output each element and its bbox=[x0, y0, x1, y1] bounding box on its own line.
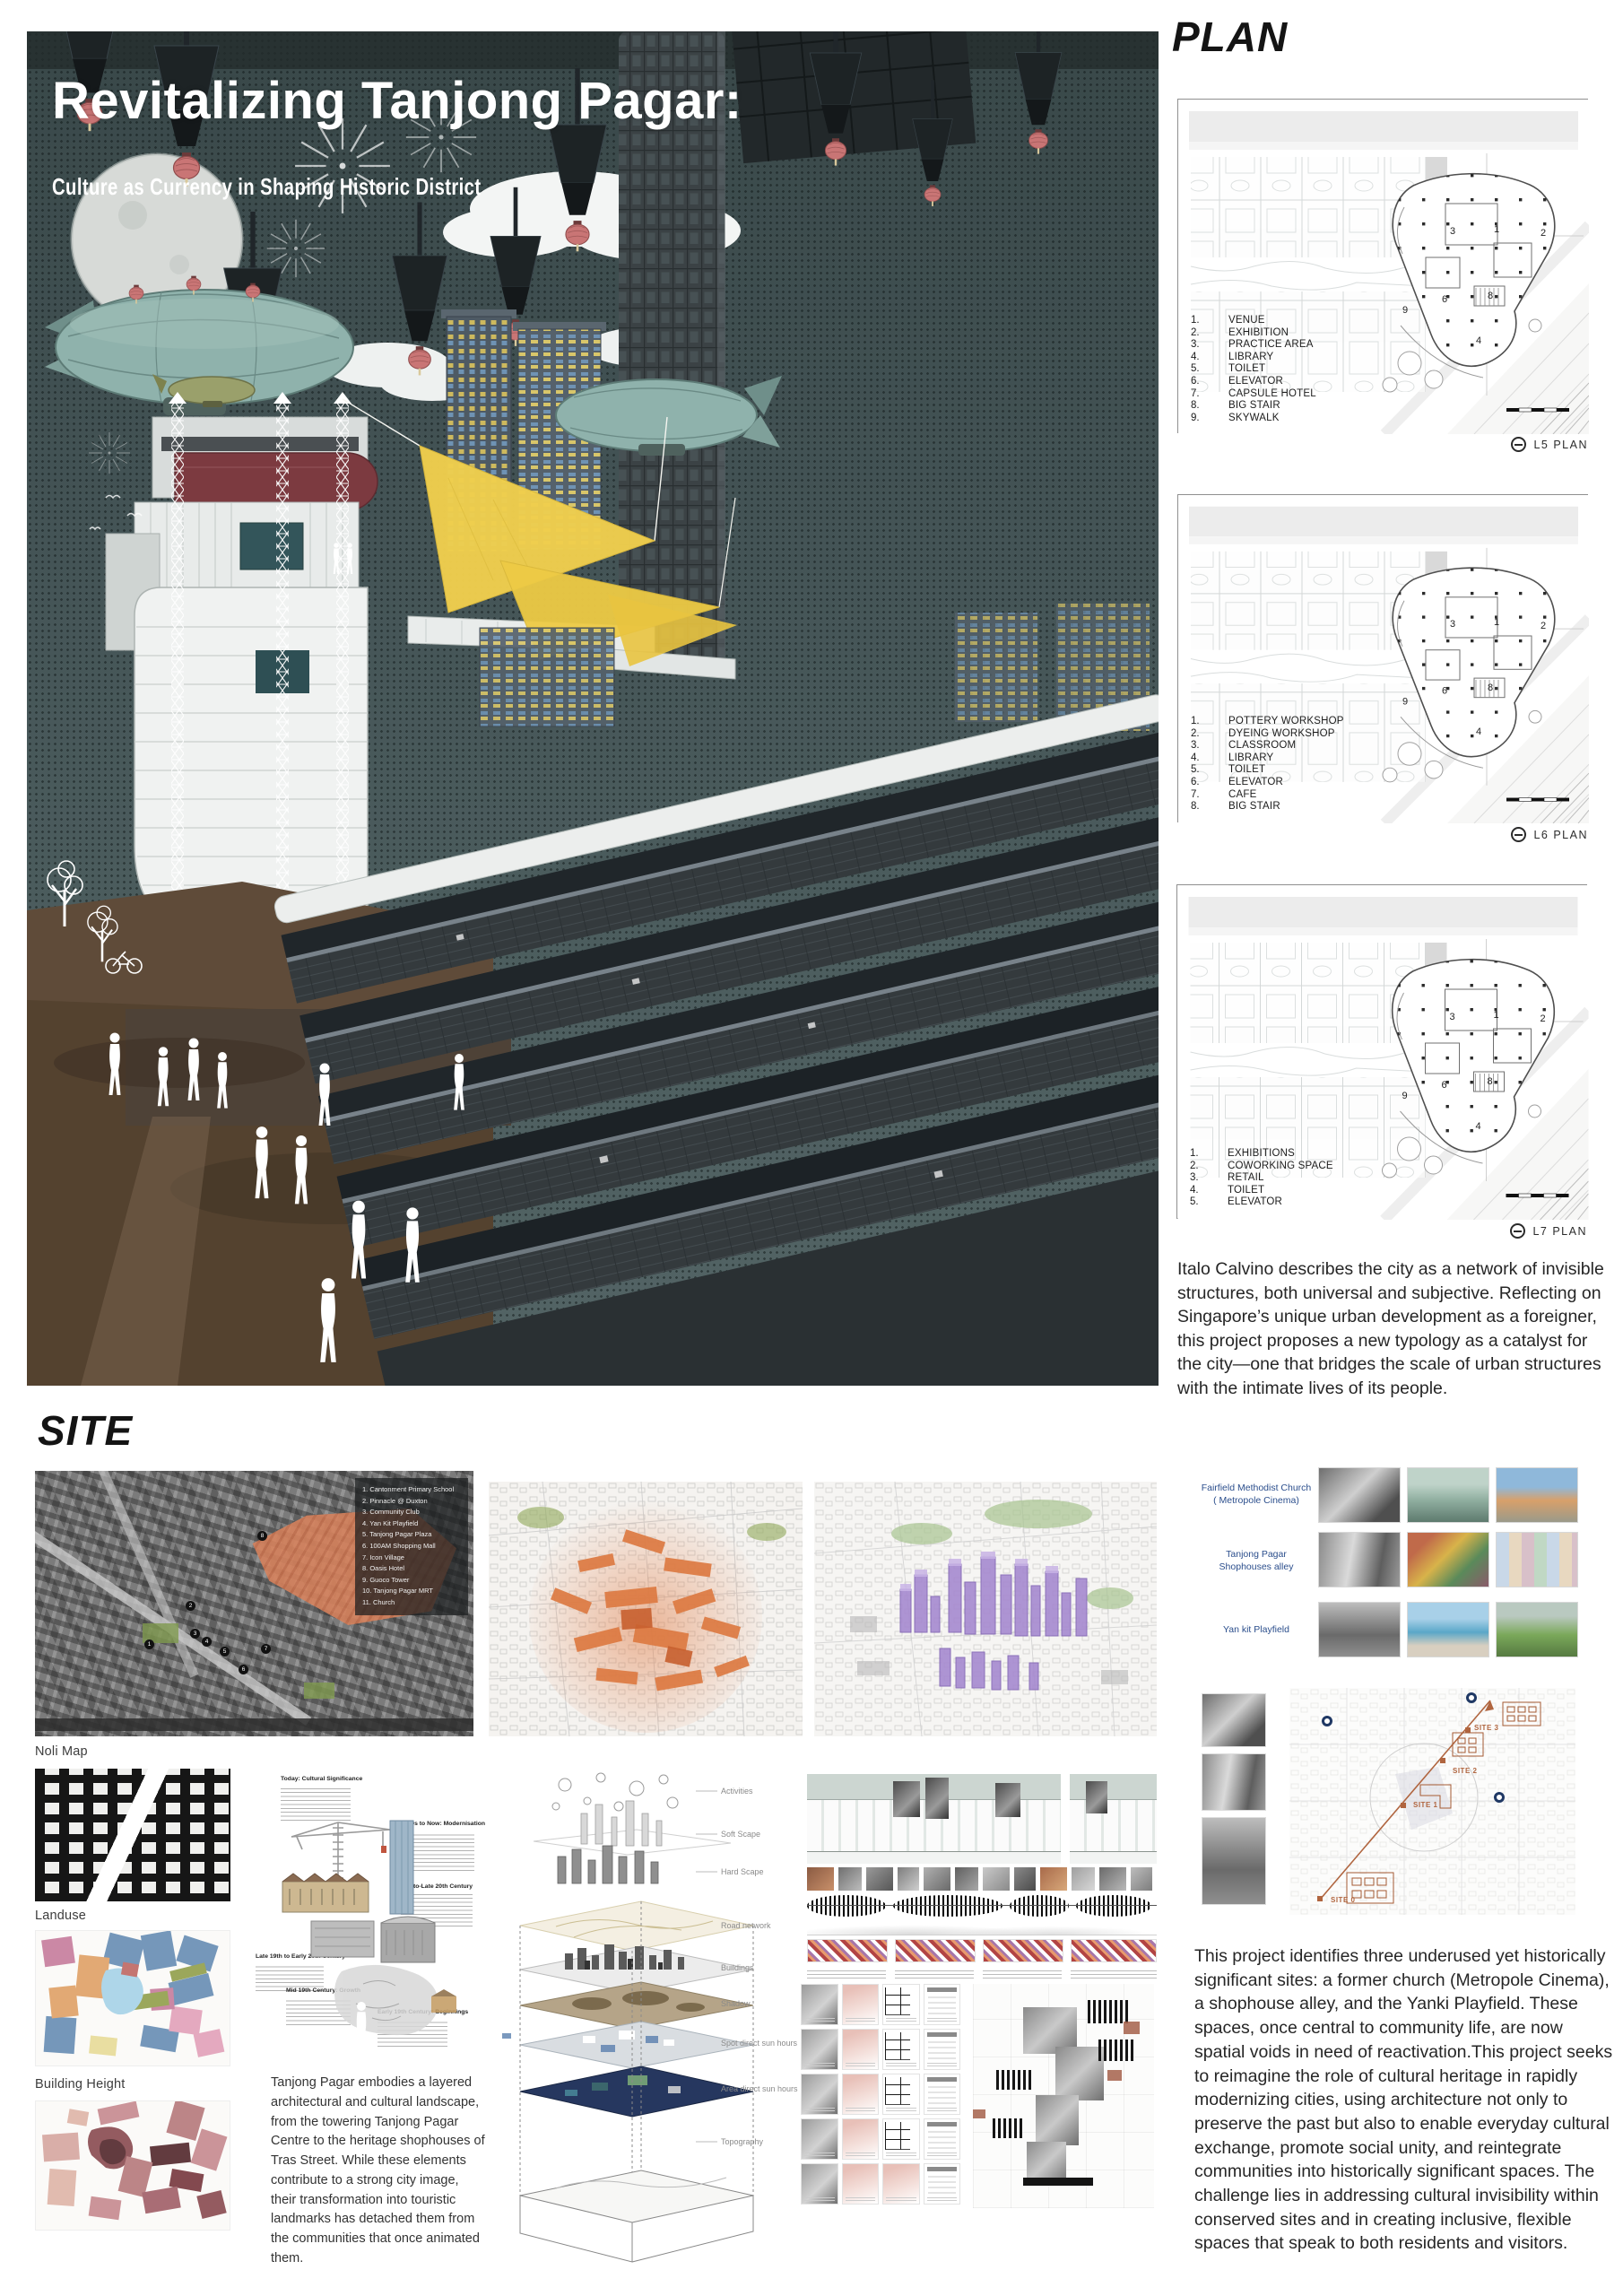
aerial-thumb-3 bbox=[1202, 1817, 1266, 1905]
hero-artwork bbox=[27, 31, 1159, 1386]
caption-microtext bbox=[1071, 1968, 1157, 1979]
site-2-label: SITE 2 bbox=[1453, 1767, 1477, 1775]
layer-shadow bbox=[520, 1982, 753, 2029]
axon-label: Spot direct sun hours bbox=[721, 2039, 797, 2048]
collage-caption-bar bbox=[1023, 2178, 1093, 2186]
axon-label: Soft Scape bbox=[721, 1830, 760, 1839]
building-height-map bbox=[35, 2100, 230, 2231]
building-height-label: Building Height bbox=[35, 2077, 126, 2092]
plan-l6-caption: L6 PLAN bbox=[1177, 827, 1588, 842]
satellite-legend-item: 6. 100AM Shopping Mall bbox=[362, 1541, 461, 1552]
axon-drawing bbox=[502, 1767, 807, 2287]
plan-l5-legend: 1.VENUE2.EXHIBITION3.PRACTICE AREA4.LIBR… bbox=[1191, 315, 1316, 424]
axon-label: Shadow bbox=[721, 1999, 751, 2008]
figure-ground-purple-map bbox=[814, 1482, 1157, 1736]
satellite-legend-item: 4. Yan Kit Playfield bbox=[362, 1518, 461, 1530]
noli-map-label: Noli Map bbox=[35, 1744, 88, 1759]
map-marker: 5 bbox=[220, 1647, 230, 1657]
plan-l7-legend: 1.EXHIBITIONS2.COWORKING SPACE3.RETAIL4.… bbox=[1190, 1148, 1333, 1209]
layer-hardscape bbox=[558, 1846, 658, 1883]
green-patch bbox=[304, 1683, 334, 1699]
north-arrow-icon bbox=[1511, 437, 1526, 452]
plan-l5-panel: 1.VENUE2.EXHIBITION3.PRACTICE AREA4.LIBR… bbox=[1177, 99, 1588, 433]
legend-item: 1.EXHIBITIONS bbox=[1190, 1148, 1333, 1161]
axon-label: Hard Scape bbox=[721, 1867, 764, 1876]
photo-church-historic bbox=[1318, 1467, 1401, 1523]
hdb-slab bbox=[480, 628, 614, 726]
legend-item: 9.SKYWALK bbox=[1191, 413, 1316, 425]
heatmap-panel bbox=[895, 1939, 976, 1962]
legend-item: 2.DYEING WORKSHOP bbox=[1191, 728, 1344, 741]
legend-item: 1.VENUE bbox=[1191, 315, 1316, 327]
photo-church-now bbox=[1496, 1467, 1578, 1523]
kampong-sketch bbox=[334, 1965, 456, 2035]
site-statement-paragraph: This project identifies three underused … bbox=[1194, 1944, 1618, 2256]
figure-ground-orange-map bbox=[489, 1482, 803, 1736]
caption-microtext bbox=[807, 1968, 886, 1979]
plan-l5-caption: L5 PLAN bbox=[1177, 437, 1588, 452]
legend-item: 8.BIG STAIR bbox=[1191, 400, 1316, 413]
layer-road-network bbox=[520, 1901, 753, 1951]
activity-barcode-diagram bbox=[807, 1894, 1157, 1918]
layer-softscape bbox=[534, 1801, 731, 1855]
heatmap-panel bbox=[807, 1939, 888, 1962]
axon-label: Area direct sun hours bbox=[721, 2084, 798, 2093]
photo-alley-market bbox=[1407, 1532, 1489, 1587]
caption-microtext bbox=[983, 1968, 1062, 1979]
history-timeline-collage: Today: Cultural Significance 1980s to No… bbox=[256, 1769, 487, 2069]
site-axis-map: SITE 0 SITE 1 SITE 2 SITE 3 bbox=[1289, 1688, 1575, 1915]
satellite-legend: 1. Cantonment Primary School2. Pinnacle … bbox=[355, 1478, 468, 1615]
photo-alley-now bbox=[1496, 1532, 1578, 1587]
board-subtitle: Culture as Currency in Shaping Historic … bbox=[52, 173, 482, 201]
photo-alley-historic bbox=[1318, 1532, 1401, 1587]
aerial-thumb-2 bbox=[1202, 1753, 1266, 1811]
axon-label: Activities bbox=[721, 1787, 753, 1796]
noli-map bbox=[35, 1769, 230, 1901]
layer-activities bbox=[552, 1773, 678, 1811]
concept-paragraph: Italo Calvino describes the city as a ne… bbox=[1177, 1257, 1604, 1400]
map-marker: 7 bbox=[261, 1644, 271, 1654]
bg-slab-1 bbox=[955, 613, 1037, 722]
plan-l6-legend: 1.POTTERY WORKSHOP2.DYEING WORKSHOP3.CLA… bbox=[1191, 716, 1344, 813]
foreground-roofs bbox=[273, 692, 1159, 1386]
legend-item: 6.ELEVATOR bbox=[1191, 376, 1316, 388]
site-study-card-grid bbox=[801, 1984, 960, 2208]
satellite-legend-item: 3. Community Club bbox=[362, 1507, 461, 1518]
satellite-legend-item: 7. Icon Village bbox=[362, 1552, 461, 1564]
photo-playfield-now bbox=[1496, 1602, 1578, 1657]
north-arrow-icon bbox=[1511, 827, 1526, 842]
layer-spot-sun bbox=[502, 2022, 753, 2068]
presentation-board: Revitalizing Tanjong Pagar: Culture as C… bbox=[0, 0, 1623, 2296]
map-marker: 6 bbox=[239, 1665, 248, 1674]
aerial-figure-ground-collage bbox=[973, 1984, 1154, 2208]
plan-heading: PLAN bbox=[1172, 13, 1288, 61]
old-shophouses bbox=[282, 1874, 369, 1912]
map-marker: 2 bbox=[186, 1601, 195, 1611]
colonial-buildings bbox=[311, 1917, 435, 1962]
satellite-site-map: 1. Cantonment Primary School2. Pinnacle … bbox=[35, 1471, 473, 1736]
legend-item: 6.ELEVATOR bbox=[1191, 777, 1344, 789]
landuse-map bbox=[35, 1930, 230, 2066]
legend-item: 3.RETAIL bbox=[1190, 1172, 1333, 1185]
legend-item: 5.TOILET bbox=[1191, 363, 1316, 376]
birds bbox=[90, 496, 142, 530]
legend-item: 3.CLASSROOM bbox=[1191, 740, 1344, 752]
caption-microtext bbox=[895, 1968, 974, 1979]
legend-item: 2.COWORKING SPACE bbox=[1190, 1161, 1333, 1173]
plan-l7-panel: 1.EXHIBITIONS2.COWORKING SPACE3.RETAIL4.… bbox=[1176, 884, 1587, 1219]
axon-label: Buildings bbox=[721, 1963, 754, 1972]
legend-item: 7.CAPSULE HOTEL bbox=[1191, 388, 1316, 401]
heatmap-panel bbox=[983, 1939, 1063, 1962]
satellite-legend-item: 10. Tanjong Pagar MRT bbox=[362, 1586, 461, 1597]
glass-tower bbox=[390, 1821, 413, 1914]
hero-illustration: Revitalizing Tanjong Pagar: Culture as C… bbox=[27, 31, 1159, 1386]
rail-corridor bbox=[35, 1718, 473, 1731]
street-elevation-study-2 bbox=[1070, 1774, 1157, 1864]
photo-playfield-historic bbox=[1318, 1602, 1401, 1657]
heatmap-panel bbox=[1071, 1939, 1157, 1962]
legend-item: 8.BIG STAIR bbox=[1191, 801, 1344, 813]
timeline-heading: Today: Cultural Significance bbox=[281, 1776, 362, 1782]
aerial-thumb-1 bbox=[1202, 1693, 1266, 1747]
legend-item: 7.CAFE bbox=[1191, 789, 1344, 802]
map-marker: 4 bbox=[202, 1637, 212, 1647]
axon-label: Topography bbox=[721, 2137, 763, 2146]
satellite-legend-item: 5. Tanjong Pagar Plaza bbox=[362, 1529, 461, 1541]
legend-item: 4.LIBRARY bbox=[1191, 752, 1344, 765]
photo-label-church: Fairfield Methodist Church( Metropole Ci… bbox=[1197, 1482, 1315, 1507]
site-1-label: SITE 1 bbox=[1413, 1801, 1437, 1809]
map-marker: 8 bbox=[257, 1531, 267, 1541]
legend-item: 4.LIBRARY bbox=[1191, 352, 1316, 364]
crane-icon bbox=[291, 1822, 390, 1885]
legend-item: 1.POTTERY WORKSHOP bbox=[1191, 716, 1344, 728]
legend-item: 5.ELEVATOR bbox=[1190, 1196, 1333, 1209]
board-title: Revitalizing Tanjong Pagar: bbox=[52, 71, 742, 131]
tanjong-pagar-paragraph: Tanjong Pagar embodies a layered archite… bbox=[271, 2074, 486, 2269]
map-marker: 3 bbox=[190, 1629, 200, 1639]
plan-l7-caption: L7 PLAN bbox=[1176, 1223, 1587, 1239]
satellite-legend-item: 2. Pinnacle @ Duxton bbox=[362, 1496, 461, 1508]
profile-curve-diagram bbox=[807, 1921, 1157, 1935]
satellite-legend-item: 11. Church bbox=[362, 1597, 461, 1609]
landuse-label: Landuse bbox=[35, 1909, 86, 1923]
streetscape-photo-strip bbox=[807, 1867, 1157, 1891]
street-elevation-study bbox=[807, 1774, 1061, 1864]
photo-playfield-pool bbox=[1407, 1602, 1489, 1657]
satellite-legend-item: 8. Oasis Hotel bbox=[362, 1563, 461, 1575]
legend-item: 2.EXHIBITION bbox=[1191, 327, 1316, 340]
north-arrow-icon bbox=[1510, 1223, 1525, 1239]
map-marker: 1 bbox=[144, 1639, 154, 1649]
photo-label-playfield: Yan kit Playfield bbox=[1197, 1623, 1315, 1636]
photo-church-mid bbox=[1407, 1467, 1489, 1523]
site-heading: SITE bbox=[38, 1406, 133, 1455]
timeline-collage-art bbox=[256, 1796, 487, 2056]
legend-item: 4.TOILET bbox=[1190, 1185, 1333, 1197]
satellite-legend-item: 9. Guoco Tower bbox=[362, 1575, 461, 1587]
photo-label-shophouses: Tanjong PagarShophouses alley bbox=[1197, 1548, 1315, 1573]
plan-l6-panel: 1.POTTERY WORKSHOP2.DYEING WORKSHOP3.CLA… bbox=[1177, 494, 1588, 822]
legend-item: 3.PRACTICE AREA bbox=[1191, 339, 1316, 352]
axon-label: Road network bbox=[721, 1921, 771, 1930]
satellite-legend-item: 1. Cantonment Primary School bbox=[362, 1484, 461, 1496]
layer-analysis-axon: Activities Soft Scape Hard Scape Road ne… bbox=[502, 1767, 807, 2287]
site-0-label: SITE 0 bbox=[1331, 1896, 1355, 1904]
layer-area-sun bbox=[520, 2066, 753, 2117]
legend-item: 5.TOILET bbox=[1191, 764, 1344, 777]
site-3-label: SITE 3 bbox=[1474, 1724, 1498, 1732]
